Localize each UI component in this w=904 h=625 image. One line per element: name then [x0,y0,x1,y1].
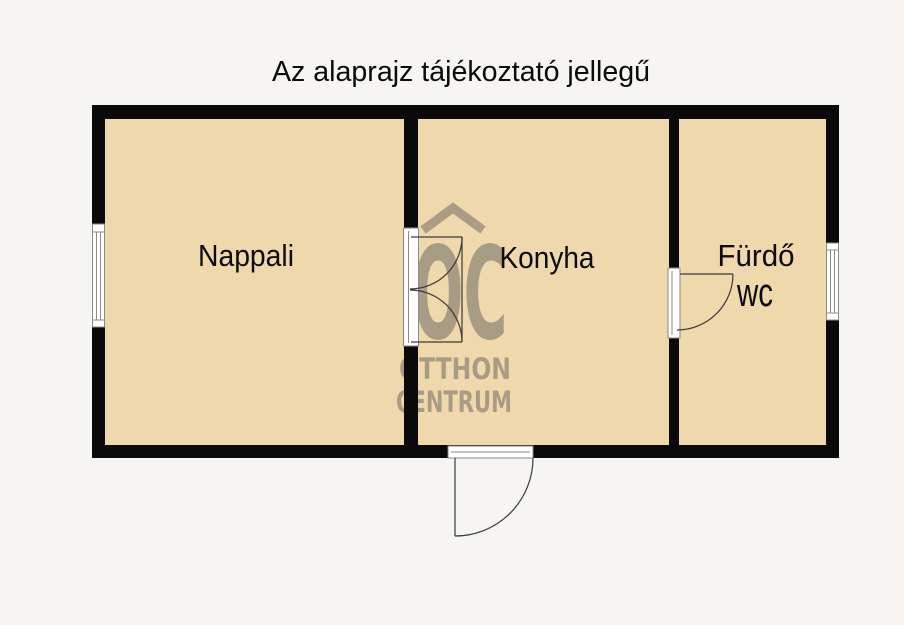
page-title: Az alaprajz tájékoztató jellegű [272,56,650,88]
watermark-logo-text: OC [413,220,508,369]
wall-konyha-furdo-lower [669,338,679,458]
room-label-nappali: Nappali [198,238,294,273]
floorplan-image: Az alaprajz tájékoztató jellegű OC OTTHO… [0,0,904,625]
wall-konyha-furdo-upper [669,105,679,268]
room-nappali-floor [105,119,404,445]
wall-top [92,105,839,119]
room-label-konyha: Konyha [500,240,596,275]
door-frame [404,228,419,346]
door-frame [668,268,680,338]
window-right [827,243,839,320]
window-frame [93,224,105,327]
wall-nappali-konyha-upper [404,105,418,228]
window-left [93,224,105,327]
window-frame [827,243,839,320]
wall-nappali-konyha-lower [404,346,418,458]
room-label-wc: wc [736,271,773,315]
room-label-furdo: Fürdő [718,238,795,273]
